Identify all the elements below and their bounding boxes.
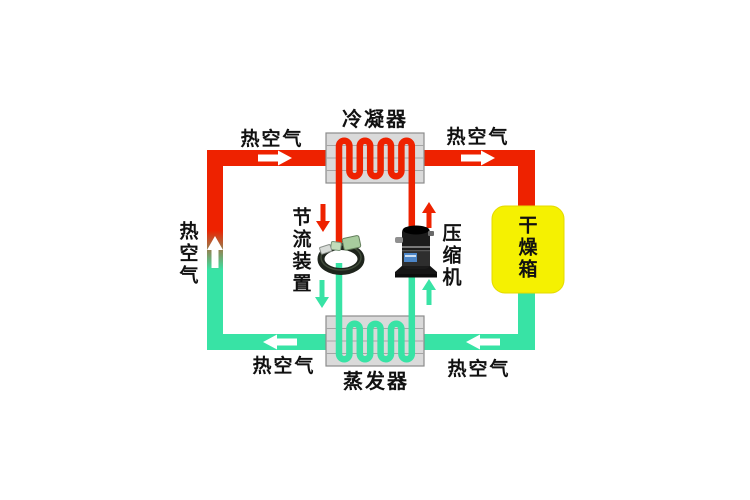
label-evaporator: 蒸发器 — [327, 371, 425, 393]
label-compressor: 压缩机 — [440, 223, 461, 289]
label-drying-box: 干燥箱 — [516, 215, 537, 281]
arrow-up-hot-refrigerant-icon — [422, 202, 436, 228]
label-hot-air-top-right: 热空气 — [430, 127, 526, 148]
compressor-device — [395, 226, 437, 278]
evaporator — [326, 263, 424, 366]
arrow-up-cold-refrigerant-icon — [422, 279, 436, 305]
label-hot-air-top-left: 热空气 — [224, 129, 320, 150]
label-hot-air-left: 热空气 — [177, 221, 198, 287]
label-throttle-device: 节流装置 — [290, 207, 311, 295]
label-hot-air-bottom-left: 热空气 — [236, 356, 332, 377]
diagram-graphics — [0, 0, 750, 500]
label-hot-air-bottom-right: 热空气 — [431, 359, 527, 380]
arrow-down-hot-refrigerant-icon — [316, 204, 330, 232]
label-condenser: 冷凝器 — [326, 109, 424, 131]
arrow-down-cold-refrigerant-icon — [315, 280, 329, 308]
heat-pump-dryer-diagram: 冷凝器 蒸发器 热空气 热空气 热空气 热空气 热空气 节流装置 压缩机 干燥箱 — [0, 0, 750, 500]
pipe-right-hot — [518, 150, 535, 212]
